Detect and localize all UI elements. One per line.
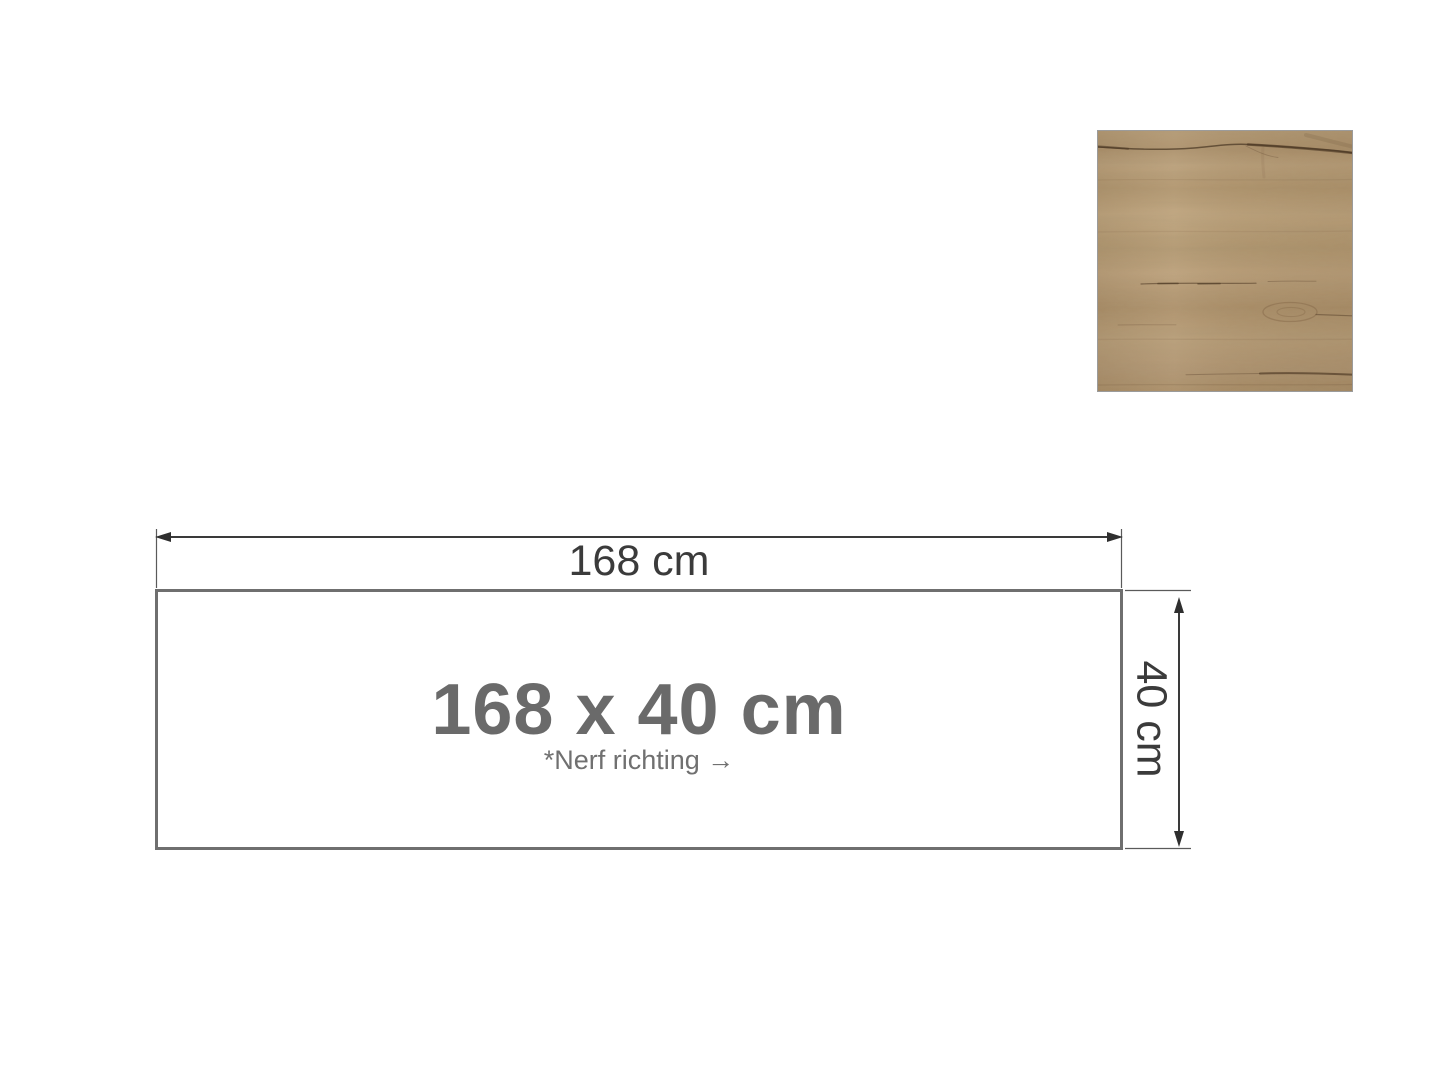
height-dimension-label-text: 40 cm bbox=[1127, 660, 1176, 777]
panel-size-label: 168 x 40 cm bbox=[156, 672, 1122, 748]
width-dimension-label: 168 cm bbox=[156, 538, 1122, 584]
arrow-up-icon bbox=[1174, 597, 1184, 613]
arrow-down-icon bbox=[1174, 831, 1184, 847]
grain-direction-note: *Nerf richting → bbox=[156, 745, 1122, 776]
product-dimension-image: 168 cm 40 cm 168 x 40 cm *Nerf richting … bbox=[0, 0, 1440, 1080]
wood-texture bbox=[1098, 131, 1352, 391]
wood-texture-swatch bbox=[1097, 130, 1353, 392]
